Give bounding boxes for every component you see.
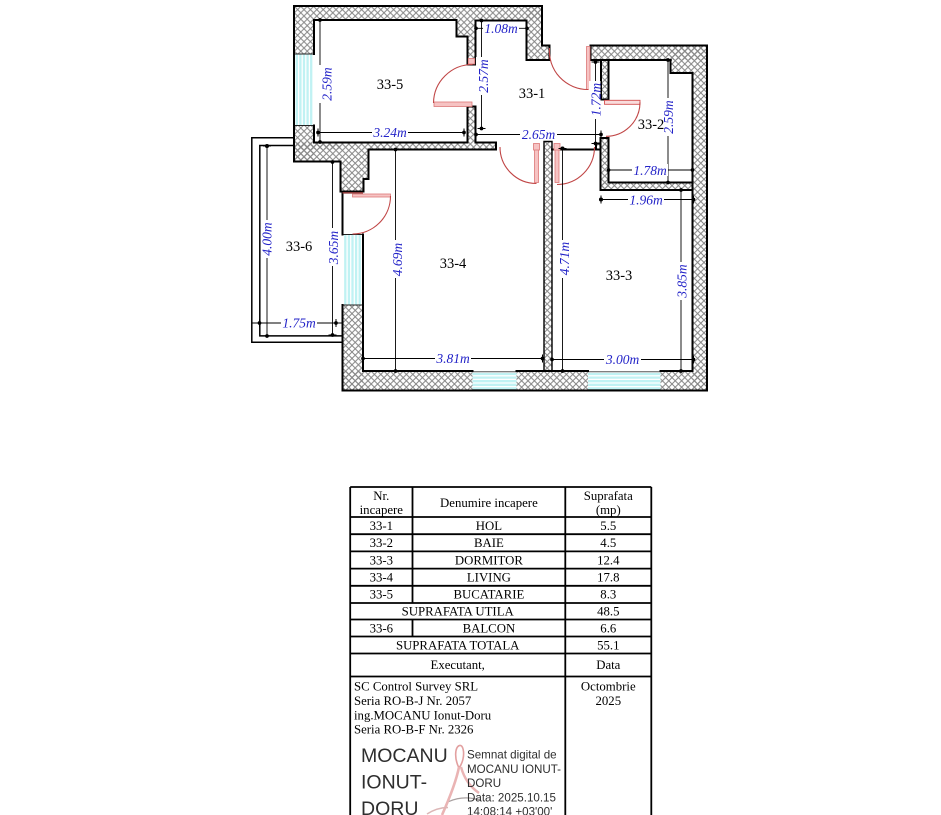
svg-text:DORU: DORU xyxy=(361,798,418,815)
svg-text:33-5: 33-5 xyxy=(370,588,393,602)
svg-text:33-4: 33-4 xyxy=(370,571,394,585)
svg-text:Suprafata: Suprafata xyxy=(584,489,633,503)
svg-text:Semnat digital de: Semnat digital de xyxy=(467,749,557,762)
svg-text:BUCATARIE: BUCATARIE xyxy=(454,588,525,602)
svg-text:incapere: incapere xyxy=(360,503,404,517)
svg-text:33-1: 33-1 xyxy=(370,519,393,533)
svg-text:LIVING: LIVING xyxy=(467,571,511,585)
svg-text:IONUT-: IONUT- xyxy=(361,772,427,794)
svg-text:6.6: 6.6 xyxy=(600,622,617,636)
svg-text:HOL: HOL xyxy=(476,519,502,533)
svg-text:33-3: 33-3 xyxy=(370,553,393,567)
svg-text:(mp): (mp) xyxy=(596,503,621,517)
svg-text:Data: Data xyxy=(596,658,620,672)
svg-text:SUPRAFATA TOTALA: SUPRAFATA TOTALA xyxy=(396,639,520,653)
svg-text:55.1: 55.1 xyxy=(597,639,619,653)
svg-text:48.5: 48.5 xyxy=(597,605,619,619)
svg-text:33-2: 33-2 xyxy=(370,536,393,550)
svg-text:33-6: 33-6 xyxy=(370,622,394,636)
svg-text:BAIE: BAIE xyxy=(474,536,504,550)
svg-text:ing.MOCANU Ionut-Doru: ing.MOCANU Ionut-Doru xyxy=(354,708,492,722)
svg-text:SC Control Survey SRL: SC Control Survey SRL xyxy=(354,680,478,694)
svg-text:Nr.: Nr. xyxy=(373,489,389,503)
svg-text:8.3: 8.3 xyxy=(600,588,616,602)
svg-text:SUPRAFATA UTILA: SUPRAFATA UTILA xyxy=(402,605,515,619)
svg-text:DORU: DORU xyxy=(467,777,501,790)
svg-text:Executant,: Executant, xyxy=(431,658,485,672)
svg-text:Denumire incapere: Denumire incapere xyxy=(440,496,538,510)
svg-text:17.8: 17.8 xyxy=(597,571,619,585)
svg-text:2025: 2025 xyxy=(596,694,622,708)
svg-text:BALCON: BALCON xyxy=(463,622,516,636)
svg-text:14:08:14 +03'00': 14:08:14 +03'00' xyxy=(467,806,552,815)
svg-text:Octombrie: Octombrie xyxy=(581,680,636,694)
svg-text:4.5: 4.5 xyxy=(600,536,616,550)
svg-text:12.4: 12.4 xyxy=(597,553,620,567)
svg-text:DORMITOR: DORMITOR xyxy=(455,553,523,567)
svg-text:Seria RO-B-J Nr. 2057: Seria RO-B-J Nr. 2057 xyxy=(354,694,472,708)
svg-text:5.5: 5.5 xyxy=(600,519,616,533)
svg-text:MOCANU: MOCANU xyxy=(361,745,448,767)
svg-text:MOCANU IONUT-: MOCANU IONUT- xyxy=(467,763,561,776)
svg-text:Data: 2025.10.15: Data: 2025.10.15 xyxy=(467,791,556,804)
svg-text:Seria RO-B-F Nr. 2326: Seria RO-B-F Nr. 2326 xyxy=(354,723,474,737)
